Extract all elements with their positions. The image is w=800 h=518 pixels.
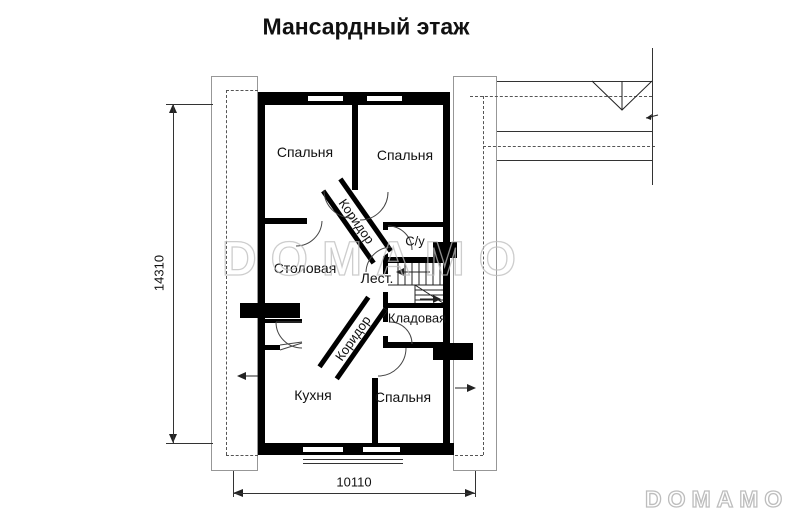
dimension-line-horizontal <box>233 493 475 494</box>
dimension-ext-bottom <box>166 443 213 444</box>
dimension-ext-right <box>475 471 476 497</box>
dimension-label-horizontal: 10110 <box>336 475 371 490</box>
room-label-bedroom-bottom: Спальня <box>375 389 431 405</box>
room-label-kitchen: Кухня <box>294 387 331 403</box>
dimension-line-vertical <box>173 104 174 443</box>
floor-plan: Мансардный этаж Коридор Кори <box>0 0 800 518</box>
watermark-corner-logo: DOMAMO <box>645 486 788 513</box>
dimension-ext-left <box>233 471 234 497</box>
room-label-storage: Кладовая <box>388 311 446 326</box>
dimension-label-vertical: 14310 <box>152 255 167 291</box>
dimension-ext-top <box>166 104 213 105</box>
room-label-bedroom-top-left: Спальня <box>277 144 333 160</box>
watermark-center: DOMAMO <box>222 232 530 287</box>
room-label-bedroom-top-right: Спальня <box>377 147 433 163</box>
